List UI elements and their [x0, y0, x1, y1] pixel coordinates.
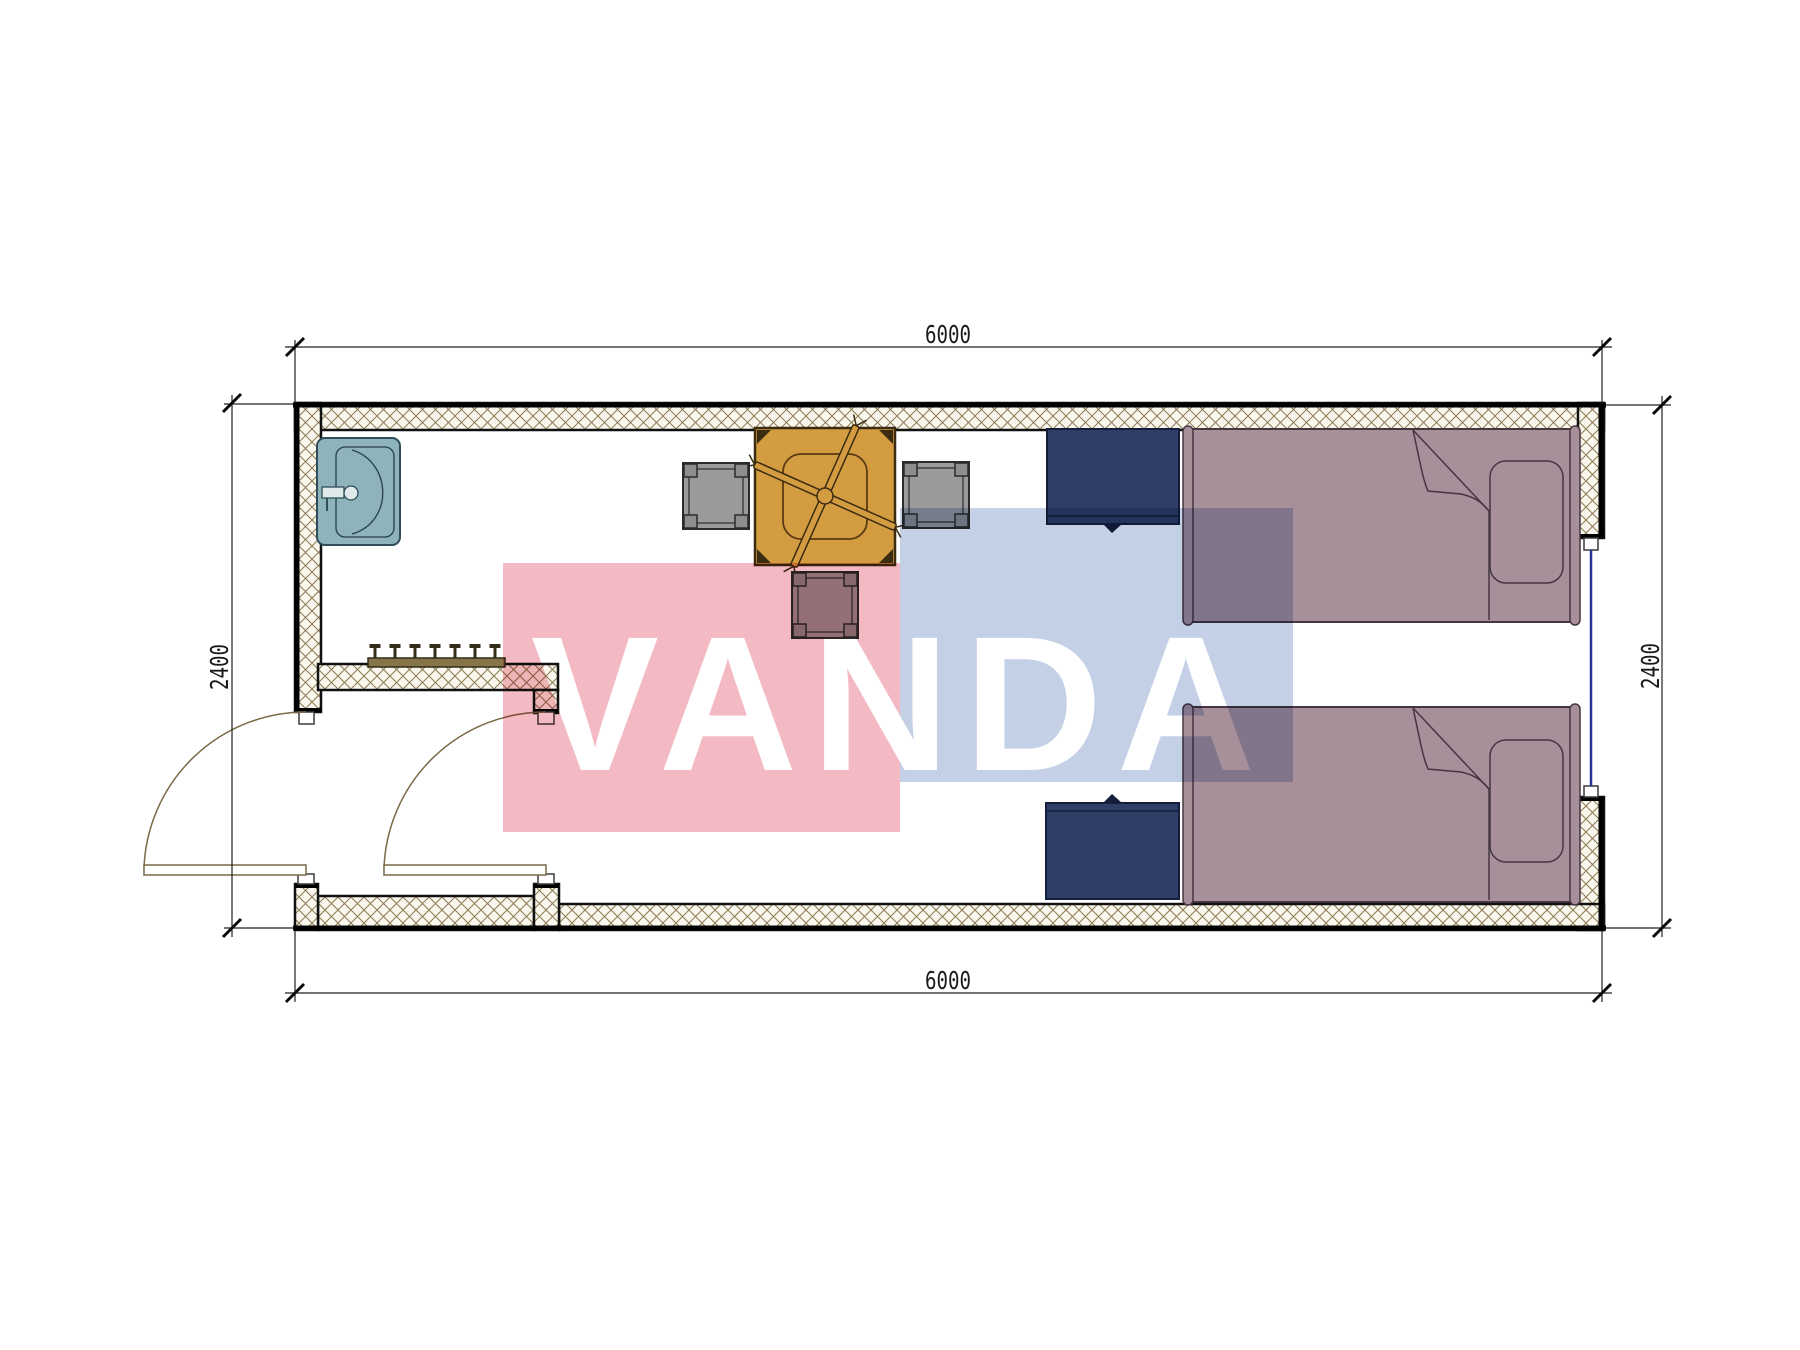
dim-label-right: 2400	[1636, 643, 1665, 689]
stool-right	[903, 462, 969, 528]
wall-stub-mid	[534, 884, 559, 930]
wall-partition	[318, 664, 558, 690]
door-swing-arc	[144, 712, 306, 868]
floor-plan-page: 6000 6000 2400 2400 VANDA	[0, 0, 1800, 1350]
door-leaf	[384, 865, 546, 875]
dining-table	[744, 415, 907, 578]
dim-label-left: 2400	[205, 644, 234, 690]
footboard	[1183, 704, 1193, 905]
wall-stub-left	[295, 884, 318, 930]
door-leaf	[144, 865, 306, 875]
coat-rack-icon	[368, 644, 505, 667]
single-bed-bottom	[1183, 704, 1580, 905]
pillow	[1490, 740, 1563, 862]
stool-left	[683, 463, 749, 529]
single-bed-top	[1183, 426, 1580, 625]
inner-door	[384, 712, 546, 875]
sink-icon	[317, 438, 400, 545]
nightstand-top	[1047, 429, 1179, 533]
nightstand-bottom	[1046, 794, 1179, 899]
footboard	[1183, 426, 1193, 625]
entry-door	[144, 712, 306, 875]
headboard	[1570, 704, 1580, 905]
stool-bottom	[792, 572, 858, 638]
headboard	[1570, 426, 1580, 625]
floor-plan-drawing: 6000 6000 2400 2400	[0, 0, 1800, 1350]
dim-label-top: 6000	[925, 320, 971, 349]
dim-label-bottom: 6000	[925, 966, 971, 995]
pillow	[1490, 461, 1563, 583]
wall-bottom-vestibule	[318, 896, 534, 930]
door-swing-arc	[384, 712, 546, 868]
